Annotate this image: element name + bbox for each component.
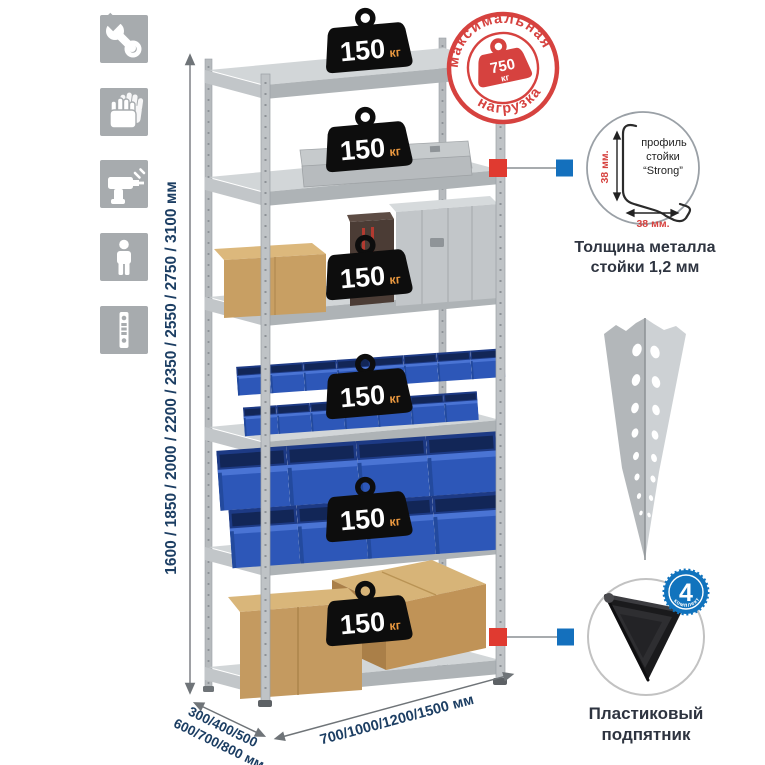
load-badge-unit: кг bbox=[389, 144, 402, 159]
load-badge-unit: кг bbox=[389, 618, 402, 633]
wrench-icon bbox=[100, 13, 148, 63]
shelving-product-infographic: 1600 / 1850 / 2000 / 2200 / 2350 / 2550 … bbox=[0, 0, 765, 765]
profile-dim-vertical: 38 мм. bbox=[599, 150, 611, 183]
load-badge-unit: кг bbox=[389, 391, 402, 406]
load-badge-unit: кг bbox=[389, 272, 402, 287]
infographic-svg: 1600 / 1850 / 2000 / 2200 / 2350 / 2550 … bbox=[0, 0, 765, 765]
load-badge-unit: кг bbox=[389, 514, 402, 529]
storage-bin bbox=[410, 394, 445, 425]
load-badge-value: 150 bbox=[339, 261, 387, 295]
profile-label-1: профиль bbox=[641, 137, 687, 149]
assembly-icons-column bbox=[100, 13, 148, 354]
load-badge-value: 150 bbox=[339, 380, 387, 414]
profile-caption-2: стойки 1,2 мм bbox=[591, 259, 700, 276]
storage-bin bbox=[216, 446, 290, 511]
storage-bin bbox=[276, 403, 311, 434]
perforated-profile-icon bbox=[100, 306, 148, 354]
gloves-icon bbox=[100, 88, 148, 136]
corner-post-image bbox=[604, 318, 686, 560]
foot-caption-2: подпятник bbox=[602, 725, 691, 744]
storage-bin bbox=[243, 405, 278, 436]
profile-detail-callout: 38 мм. 38 мм. профиль стойки “Strong” То… bbox=[574, 112, 715, 276]
load-badge-value: 150 bbox=[339, 503, 387, 537]
load-badge-value: 150 bbox=[339, 133, 387, 167]
connector-blue-square-bottom bbox=[557, 629, 574, 646]
height-dimension-label: 1600 / 1850 / 2000 / 2200 / 2350 / 2550 … bbox=[163, 181, 180, 575]
drill-icon bbox=[100, 160, 148, 208]
storage-bin bbox=[426, 431, 500, 496]
height-dimension: 1600 / 1850 / 2000 / 2200 / 2350 / 2550 … bbox=[163, 58, 190, 690]
profile-caption-1: Толщина металла bbox=[574, 239, 715, 256]
profile-label-3: “Strong” bbox=[643, 165, 683, 177]
storage-bin bbox=[356, 436, 430, 501]
load-badge-unit: кг bbox=[389, 45, 402, 60]
depth-dimension: 300/400/500 600/700/800 мм bbox=[171, 704, 266, 765]
load-badge-value: 150 bbox=[339, 607, 387, 641]
max-load-stamp: максимальная нагрузка 750 кг bbox=[436, 0, 568, 132]
storage-bin bbox=[437, 351, 472, 382]
load-badge-2: 150 кг bbox=[321, 106, 413, 173]
person-icon bbox=[100, 233, 148, 281]
foot-caption-1: Пластиковый bbox=[589, 704, 704, 723]
profile-dim-horizontal: 38 мм. bbox=[636, 218, 669, 230]
connector-blue-square-top bbox=[556, 160, 573, 177]
connector-red-square-top bbox=[489, 159, 507, 177]
storage-bin bbox=[403, 353, 438, 384]
load-badge-value: 150 bbox=[339, 34, 387, 68]
profile-label-2: стойки bbox=[646, 151, 680, 163]
storage-bin bbox=[432, 491, 504, 554]
storage-bin bbox=[443, 391, 478, 422]
load-badge-1: 150 кг bbox=[321, 7, 413, 74]
storage-bin bbox=[269, 362, 304, 393]
connector-red-square-bottom bbox=[489, 628, 507, 646]
